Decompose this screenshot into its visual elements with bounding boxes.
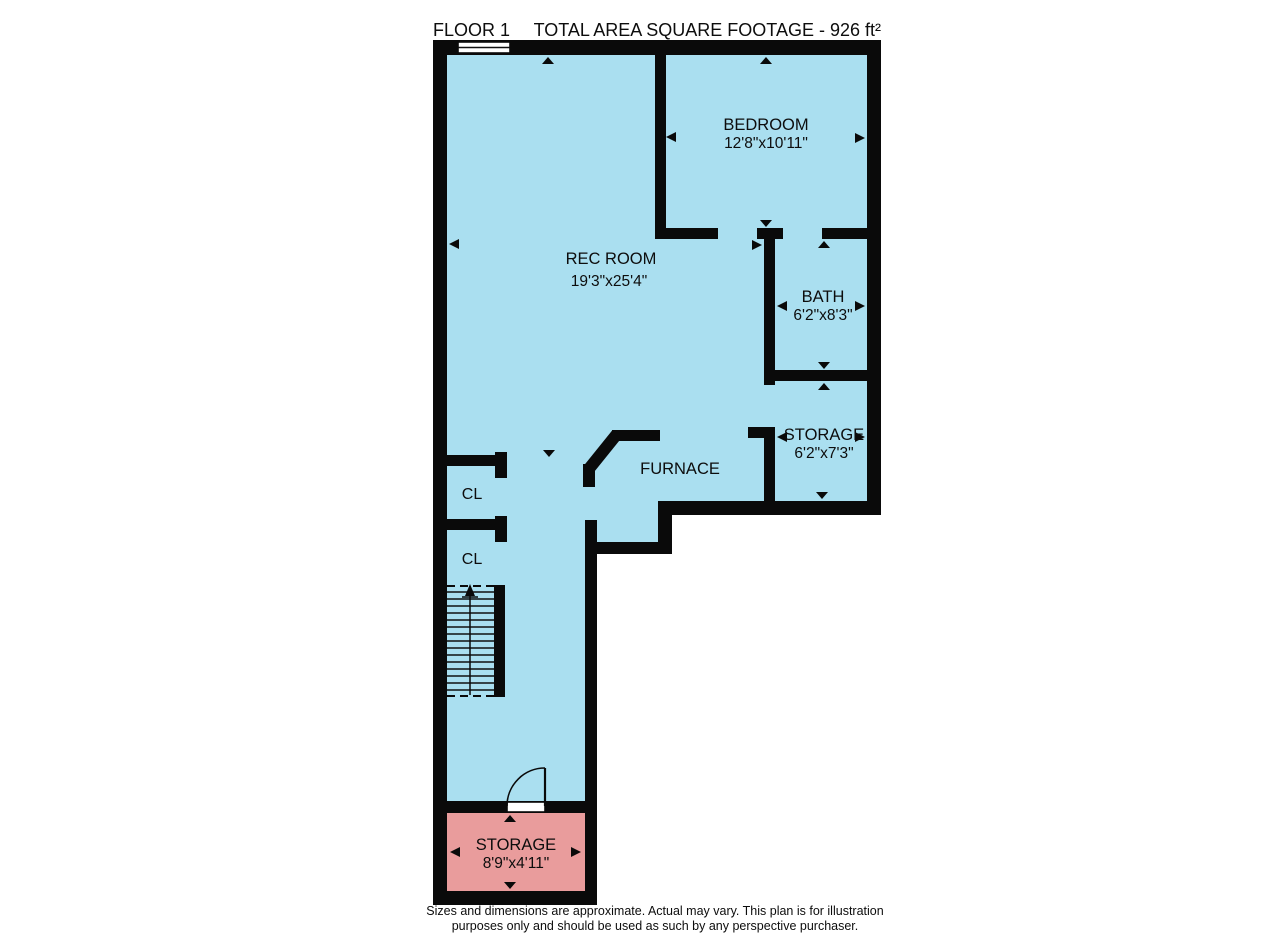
floor-plan-drawing: FLOOR 1 TOTAL AREA SQUARE FOOTAGE - 926 …	[0, 0, 1280, 943]
floor-plan-page: FLOOR 1 TOTAL AREA SQUARE FOOTAGE - 926 …	[0, 0, 1280, 943]
window	[458, 42, 510, 53]
wall-bottom-right	[658, 501, 881, 515]
storage-label: STORAGE	[784, 426, 864, 444]
wall-closet1-cap	[495, 452, 507, 478]
wall-closet2-cap	[495, 516, 507, 542]
basement-storage-label: STORAGE	[476, 836, 556, 854]
rec-room-label: REC ROOM	[566, 250, 657, 268]
door-threshold	[507, 802, 545, 812]
total-area-title: TOTAL AREA SQUARE FOOTAGE - 926 ft²	[534, 20, 881, 40]
rec-room-dimensions: 19'3"x25'4"	[571, 273, 647, 290]
wall-basement-storage-bottom	[433, 891, 597, 905]
disclaimer-line-1: Sizes and dimensions are approximate. Ac…	[426, 904, 883, 918]
wall-bath-bottom	[764, 370, 867, 381]
bath-dimensions: 6'2"x8'3"	[793, 307, 852, 324]
wall-bedroom-left	[655, 55, 666, 232]
wall-bedroom-bottom	[655, 228, 718, 239]
basement-storage-dimensions: 8'9"x4'11"	[483, 855, 550, 872]
wall-corridor-right	[585, 520, 597, 905]
storage-dimensions: 6'2"x7'3"	[794, 445, 853, 462]
floor-title: FLOOR 1	[433, 20, 510, 40]
disclaimer-line-2: purposes only and should be used as such…	[452, 919, 859, 933]
wall-step-horizontal	[585, 542, 672, 554]
wall-closet1-bar	[447, 455, 498, 466]
wall-bath-left	[764, 228, 775, 385]
stair-stringer	[494, 585, 505, 697]
bedroom-label: BEDROOM	[723, 116, 808, 134]
bath-label: BATH	[802, 288, 845, 306]
closet-lower-label: CL	[462, 551, 483, 568]
wall-right	[867, 40, 881, 515]
wall-left	[433, 40, 447, 905]
wall-closet2-bar	[447, 519, 498, 530]
wall-furnace-stub	[583, 464, 595, 487]
wall-bath-top-right	[822, 228, 867, 239]
bedroom-dimensions: 12'8"x10'11"	[724, 135, 808, 152]
furnace-label: FURNACE	[640, 460, 720, 478]
closet-upper-label: CL	[462, 486, 483, 503]
wall-storage-left	[764, 427, 775, 501]
